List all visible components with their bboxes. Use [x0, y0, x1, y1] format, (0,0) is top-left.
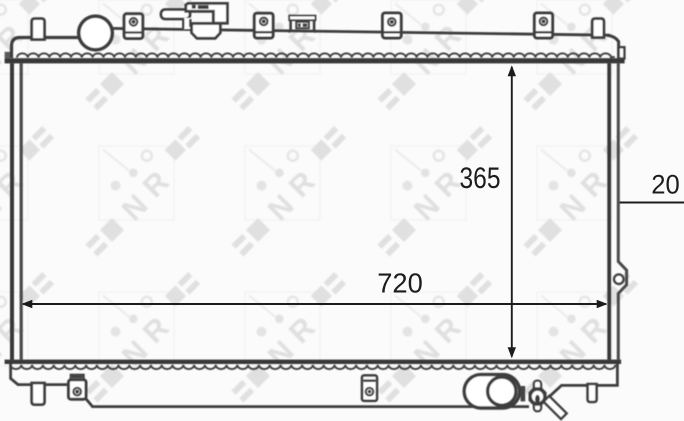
svg-text:20: 20 — [651, 170, 680, 200]
svg-text:720: 720 — [377, 268, 423, 299]
svg-text:365: 365 — [460, 162, 501, 195]
